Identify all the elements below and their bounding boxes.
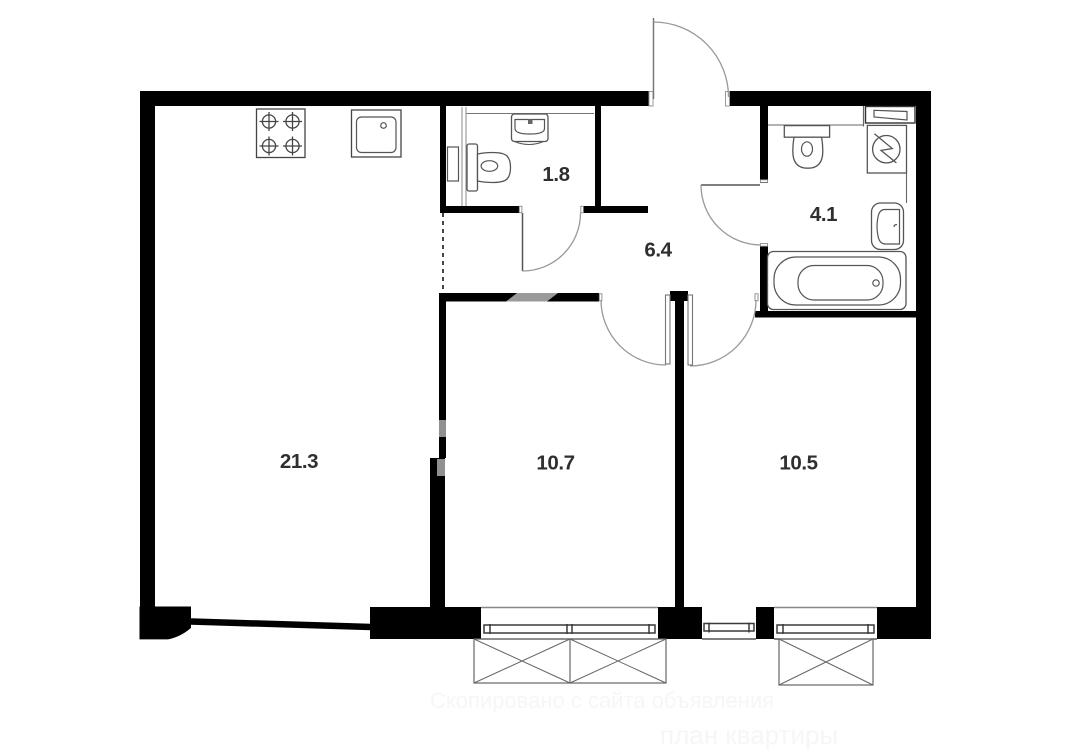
svg-text:10.5: 10.5: [779, 452, 817, 475]
svg-text:21.3: 21.3: [280, 450, 318, 473]
svg-text:план квартиры: план квартиры: [660, 720, 838, 750]
svg-text:1.8: 1.8: [542, 163, 569, 186]
svg-text:10.7: 10.7: [536, 452, 574, 475]
svg-text:Скопировано с сайта объявления: Скопировано с сайта объявления: [430, 688, 774, 713]
svg-text:6.4: 6.4: [644, 239, 672, 262]
svg-text:4.1: 4.1: [810, 203, 837, 226]
